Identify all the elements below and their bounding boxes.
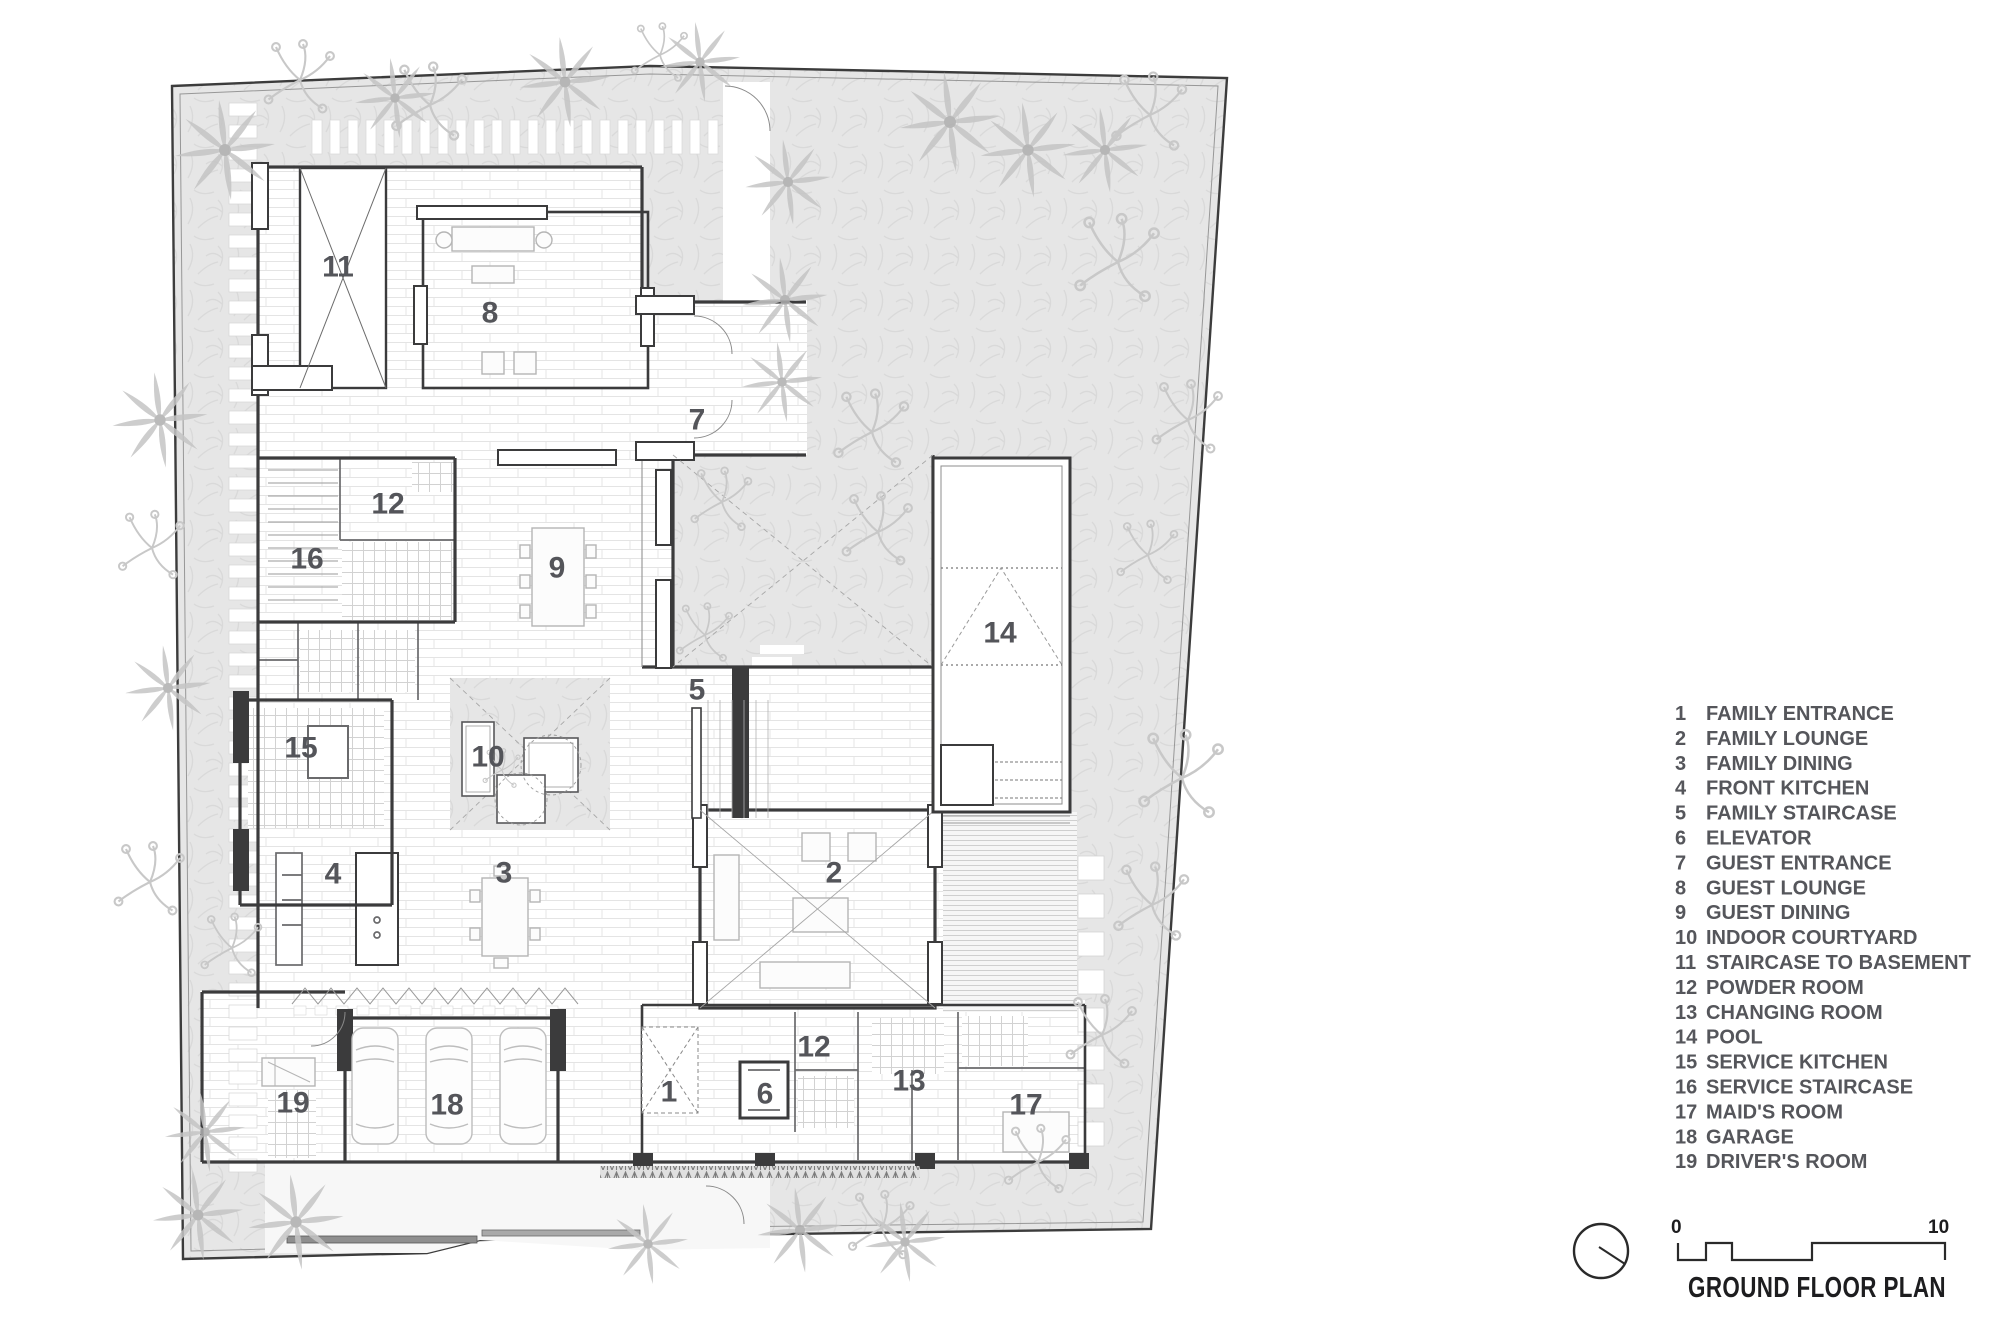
trellis-rung [229, 1049, 257, 1062]
legend-item-number: 7 [1675, 852, 1686, 874]
legend-item-number: 14 [1675, 1027, 1698, 1049]
garage-roof-slat [420, 1006, 432, 1015]
room-number-label: 1 [661, 1076, 678, 1109]
stepping-stone [1078, 1122, 1104, 1146]
north-indicator [1574, 1224, 1628, 1278]
legend-item-number: 8 [1675, 877, 1686, 899]
trellis-rung [229, 499, 257, 512]
garage-roof-slat [504, 1006, 516, 1015]
legend-item-label: GUEST LOUNGE [1706, 877, 1866, 899]
garage-roof-slat [462, 1006, 474, 1015]
trellis-rung [229, 477, 257, 490]
legend-item-number: 15 [1675, 1052, 1697, 1074]
shrub-branch-icon [115, 842, 184, 914]
pergola-slat [582, 120, 592, 154]
room-number-label: 3 [496, 857, 513, 890]
pergola-slat [420, 120, 430, 154]
trellis-rung [229, 279, 257, 292]
legend: 1FAMILY ENTRANCE2FAMILY LOUNGE3FAMILY DI… [1675, 703, 1971, 1173]
pergola-slat [492, 120, 502, 154]
legend-item-label: POOL [1706, 1027, 1763, 1049]
pergola-slat [528, 120, 538, 154]
title-block: 0 10 GROUND FLOOR PLAN [1574, 1217, 1949, 1304]
garage-roof-slat [525, 1006, 537, 1015]
trellis-rung [229, 411, 257, 424]
legend-item-number: 1 [1675, 703, 1686, 725]
trellis-rung [229, 543, 257, 556]
legend-item-number: 18 [1675, 1126, 1697, 1148]
legend-item-number: 5 [1675, 803, 1686, 825]
pergola-slat [672, 120, 682, 154]
legend-item-label: SERVICE STAIRCASE [1706, 1077, 1913, 1099]
pergola-slat [618, 120, 628, 154]
legend-item-number: 17 [1675, 1101, 1697, 1123]
legend-item-number: 4 [1675, 778, 1687, 800]
pergola-slat [600, 120, 610, 154]
trellis-rung [229, 1137, 257, 1150]
floor-plan-sheet: 1234567891011121213141516171819 1FAMILY … [0, 0, 2000, 1333]
legend-item-label: ELEVATOR [1706, 828, 1812, 850]
garage-roof-slat [294, 1006, 306, 1015]
trellis-rung [229, 983, 257, 996]
trellis-rung [229, 235, 257, 248]
trellis-rung [229, 675, 257, 688]
legend-item-label: MAID'S ROOM [1706, 1101, 1843, 1123]
trellis-rung [229, 1071, 257, 1084]
room-number-label: 17 [1009, 1089, 1042, 1122]
garage-roof-slat [378, 1006, 390, 1015]
legend-item-label: FAMILY STAIRCASE [1706, 803, 1897, 825]
trellis-rung [229, 1005, 257, 1018]
legend-item-number: 10 [1675, 927, 1697, 949]
garage-roof-slat [357, 1006, 369, 1015]
room-number-label: 9 [549, 552, 566, 585]
legend-item-label: GUEST DINING [1706, 902, 1850, 924]
room-number-label: 4 [325, 858, 342, 891]
legend-item-label: STAIRCASE TO BASEMENT [1706, 952, 1971, 974]
pergola-slat [510, 120, 520, 154]
pergola-slat [546, 120, 556, 154]
scale-end-label: 10 [1928, 1217, 1949, 1238]
trellis-rung [229, 521, 257, 534]
garage-roof-slat [441, 1006, 453, 1015]
pergola-slat [312, 120, 322, 154]
legend-item-label: GUEST ENTRANCE [1706, 852, 1892, 874]
stepping-stone [1078, 970, 1104, 994]
pergola-slat [690, 120, 700, 154]
room-number-label: 5 [689, 674, 706, 707]
legend-item-label: CHANGING ROOM [1706, 1002, 1883, 1024]
stepping-stone [1078, 856, 1104, 880]
pergola-slat [654, 120, 664, 154]
legend-item-label: FAMILY ENTRANCE [1706, 703, 1894, 725]
stepping-stone [1078, 1046, 1104, 1070]
floor-plan-canvas: 1234567891011121213141516171819 1FAMILY … [0, 0, 2000, 1333]
trellis-rung [229, 433, 257, 446]
hedge-row [600, 1166, 920, 1178]
pergola-slat [564, 120, 574, 154]
trellis-rung [229, 631, 257, 644]
legend-item-label: GARAGE [1706, 1126, 1794, 1148]
pergola-slat [330, 120, 340, 154]
room-number-label: 15 [284, 732, 317, 765]
legend-item-number: 13 [1675, 1002, 1697, 1024]
drawing-title: GROUND FLOOR PLAN [1688, 1272, 1946, 1304]
garage-roof-slat [483, 1006, 495, 1015]
stepping-stone [1078, 1084, 1104, 1108]
legend-item-number: 3 [1675, 753, 1686, 775]
scale-bar: 0 10 [1671, 1217, 1949, 1260]
room-number-label: 11 [322, 251, 354, 284]
trellis-rung [229, 1093, 257, 1106]
trellis-rung [229, 609, 257, 622]
stepping-stone [1078, 894, 1104, 918]
wood-deck [933, 812, 1077, 1012]
legend-item-number: 19 [1675, 1151, 1697, 1173]
garage-cars [352, 1028, 546, 1144]
room-number-label: 14 [983, 617, 1017, 650]
trellis-rung [229, 587, 257, 600]
legend-item-label: FAMILY DINING [1706, 753, 1853, 775]
room-number-label: 7 [689, 404, 706, 437]
legend-item-label: SERVICE KITCHEN [1706, 1052, 1888, 1074]
legend-item-number: 9 [1675, 902, 1686, 924]
trellis-rung [229, 1115, 257, 1128]
room-number-label: 2 [826, 857, 843, 890]
room-number-label: 13 [892, 1065, 925, 1098]
legend-item-number: 6 [1675, 828, 1686, 850]
legend-item-label: INDOOR COURTYARD [1706, 927, 1918, 949]
legend-item-label: FRONT KITCHEN [1706, 778, 1869, 800]
trellis-rung [229, 301, 257, 314]
room-number-label: 12 [797, 1031, 830, 1064]
shrub-branch-icon [119, 511, 184, 578]
scale-start-label: 0 [1671, 1217, 1682, 1238]
legend-item-number: 12 [1675, 977, 1697, 999]
trellis-rung [229, 1027, 257, 1040]
pergola-slat [636, 120, 646, 154]
trellis-rung [229, 653, 257, 666]
room-number-label: 10 [471, 741, 504, 774]
room-number-label: 8 [482, 297, 499, 330]
garage-roof-slat [399, 1006, 411, 1015]
legend-item-number: 16 [1675, 1077, 1697, 1099]
pergola-slat [708, 120, 718, 154]
room-number-label: 16 [290, 543, 323, 576]
pergola-slat [474, 120, 484, 154]
trellis-rung [229, 455, 257, 468]
room-number-label: 18 [430, 1089, 463, 1122]
garage-roof-slat [315, 1006, 327, 1015]
legend-item-label: POWDER ROOM [1706, 977, 1864, 999]
trellis-rung [229, 257, 257, 270]
legend-item-number: 2 [1675, 728, 1686, 750]
legend-item-label: FAMILY LOUNGE [1706, 728, 1868, 750]
legend-item-number: 11 [1675, 952, 1696, 974]
room-number-label: 6 [757, 1078, 774, 1111]
room-number-label: 12 [371, 488, 404, 521]
stepping-stone [1078, 932, 1104, 956]
pergola-slat [348, 120, 358, 154]
pergola-slat [402, 120, 412, 154]
trellis-rung [229, 565, 257, 578]
room-number-label: 19 [276, 1087, 309, 1120]
legend-item-label: DRIVER'S ROOM [1706, 1151, 1867, 1173]
driveway-gate-2 [482, 1230, 640, 1236]
